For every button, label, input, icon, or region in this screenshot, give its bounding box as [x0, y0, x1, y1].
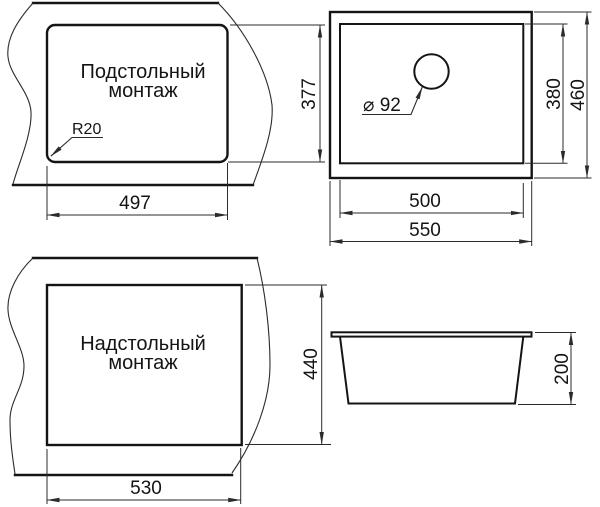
radius-leader-line [51, 138, 103, 157]
sink-bowl-rect [340, 24, 523, 163]
radius-callout-label: R20 [72, 121, 101, 138]
undermount-title-line2: монтаж [108, 80, 178, 102]
sink-bowl-profile [340, 337, 523, 404]
faucet-hole-circle [414, 54, 448, 88]
dimension-label-380: 380 [544, 78, 565, 110]
dimension-label-377: 377 [299, 78, 320, 110]
dimension-label-200: 200 [552, 353, 573, 385]
topmount-view: Надстольный монтаж 440 530 [8, 258, 331, 504]
break-line-left [8, 258, 33, 474]
dimension-label-440: 440 [301, 348, 322, 380]
dimension-label-497: 497 [119, 193, 151, 214]
dimension-label-530: 530 [130, 478, 162, 499]
dimension-label-460: 460 [568, 79, 589, 111]
plan-view: ⌀ 92 377 380 460 500 550 [228, 12, 592, 246]
dimension-label-550: 550 [409, 220, 441, 241]
sink-outer-rect [330, 12, 532, 178]
undermount-view: Подстольный монтаж R20 497 [8, 3, 272, 220]
break-line-left [8, 3, 33, 184]
sink-installation-diagram: Подстольный монтаж R20 497 ⌀ 92 377 380 … [0, 0, 600, 507]
dimension-label-500: 500 [409, 191, 441, 212]
sink-rim-profile [332, 332, 532, 336]
hole-diameter-label: ⌀ 92 [363, 95, 401, 116]
break-line-right [232, 258, 270, 473]
side-profile-view: 200 [332, 332, 577, 404]
technical-drawing-sheet: Подстольный монтаж R20 497 ⌀ 92 377 380 … [0, 0, 600, 507]
topmount-title-line2: монтаж [108, 352, 178, 374]
